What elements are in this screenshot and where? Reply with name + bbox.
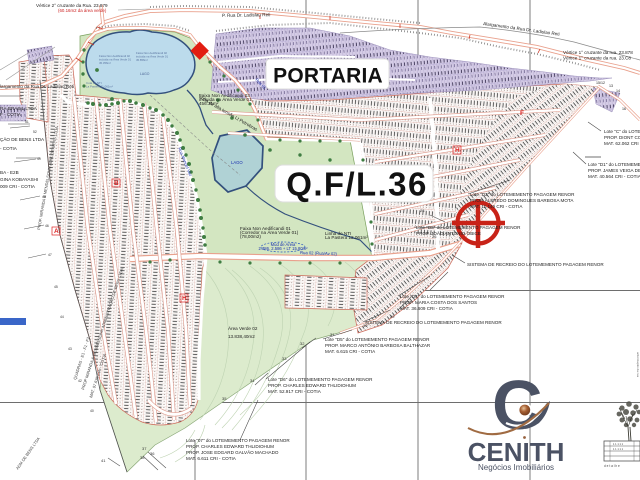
svg-text:41: 41 — [101, 458, 106, 463]
svg-text:RA-BRASIL LTDA: RA-BRASIL LTDA — [0, 106, 38, 111]
svg-text:PROP. ALFREDO DOMINGUES BARBOS: PROP. ALFREDO DOMINGUES BARBOSA MOTA — [470, 198, 574, 203]
svg-text:PROP. DIONT COM: PROP. DIONT COM — [604, 135, 640, 140]
svg-text:(60.16m2 da área verde): (60.16m2 da área verde) — [58, 8, 107, 13]
svg-text:Vértice 1° cruzante da rua. 23: Vértice 1° cruzante da rua. 23.878 — [563, 50, 633, 55]
svg-text:Lote "D2" do LOTEMEMENTO PAGAG: Lote "D2" do LOTEMEMENTO PAGAGEM RENOR — [470, 192, 575, 197]
svg-text:La Pastera 11.061m²: La Pastera 11.061m² — [86, 85, 113, 89]
svg-text:SISTEMA DE RECREIO DO LOTEMEME: SISTEMA DE RECREIO DO LOTEMEMENTO PAGAGE… — [467, 262, 604, 267]
svg-text:47: 47 — [48, 253, 52, 257]
svg-text:Lote "D4" do LOTEMEMENTO PAGAG: Lote "D4" do LOTEMEMENTO PAGAGEM RENOR — [400, 294, 505, 299]
svg-text:28: 28 — [420, 208, 425, 213]
svg-text:PROP. MARIA COSTA DOS SANTOS: PROP. MARIA COSTA DOS SANTOS — [400, 300, 477, 305]
svg-text:45.356m²: 45.356m² — [99, 61, 111, 65]
svg-text:33: 33 — [282, 356, 287, 361]
svg-text:45.856m²: 45.856m² — [136, 58, 148, 62]
svg-text:26: 26 — [432, 234, 437, 239]
svg-text:H: H — [455, 147, 460, 154]
svg-text:1 1 1 1 1: 1 1 1 1 1 — [613, 442, 624, 446]
svg-text:Lote "D6" do LOTEMEMENTO PAGAG: Lote "D6" do LOTEMEMENTO PAGAGEM RENOR — [268, 377, 373, 382]
svg-text:F - COTIA: F - COTIA — [0, 112, 22, 117]
svg-text:009 CRI - COTIA: 009 CRI - COTIA — [0, 184, 36, 189]
svg-text:456.31m²: 456.31m² — [199, 101, 219, 106]
svg-text:MAT. 52.917 CRI - COTIA: MAT. 52.917 CRI - COTIA — [268, 389, 322, 394]
svg-text:32: 32 — [300, 341, 305, 346]
svg-text:MAT. 40.564 CRI - COTIA: MAT. 40.564 CRI - COTIA — [588, 174, 640, 179]
svg-text:13: 13 — [609, 84, 613, 88]
svg-text:Negócios Imobiliários: Negócios Imobiliários — [478, 463, 554, 472]
svg-text:15/12: 15/12 — [596, 81, 605, 85]
svg-text:LAGO: LAGO — [231, 160, 243, 165]
svg-text:Lote "D1" do LOTEMEMENTO: Lote "D1" do LOTEMEMENTO — [588, 162, 640, 167]
svg-text:44: 44 — [60, 315, 64, 319]
svg-text:PROP. JOSE EDGARD GALVÃO MACHA: PROP. JOSE EDGARD GALVÃO MACHADO — [186, 449, 279, 455]
svg-text:Lote "D5" do LOTEMEMENTO PAGAG: Lote "D5" do LOTEMEMENTO PAGAGEM RENOR — [325, 337, 430, 342]
svg-text:LAGO: LAGO — [140, 72, 150, 76]
svg-text:36: 36 — [150, 451, 155, 456]
svg-text:Área Verde 02: Área Verde 02 — [228, 325, 258, 331]
svg-text:14: 14 — [616, 89, 620, 93]
svg-text:30: 30 — [363, 323, 368, 328]
svg-text:arborização da rua: arborização da rua — [636, 352, 640, 377]
svg-text:P. Rua Dr. Ladislau Reti: P. Rua Dr. Ladislau Reti — [222, 12, 271, 18]
svg-text:MAT. 62.062 CRI - C: MAT. 62.062 CRI - C — [604, 141, 640, 146]
svg-text:Lote "07" do LOTEMEMENTO PAGAG: Lote "07" do LOTEMEMENTO PAGAGEM RENOR — [186, 438, 290, 443]
svg-text:F: F — [520, 110, 524, 117]
svg-text:MAT. 11.149 CRI - COTIA: MAT. 11.149 CRI - COTIA — [470, 204, 523, 209]
svg-text:MAT. 6.615 CRI - COTIA: MAT. 6.615 CRI - COTIA — [325, 349, 376, 354]
svg-text:1 1 1 1 1: 1 1 1 1 1 — [613, 447, 624, 451]
svg-text:Q.F/L.36: Q.F/L.36 — [286, 166, 427, 203]
svg-text:B: B — [114, 180, 119, 187]
svg-text:SISTEMA DE RECREIO DO LOTEMEME: SISTEMA DE RECREIO DO LOTEMEMENTO PAGAGE… — [365, 320, 502, 325]
svg-text:29: 29 — [390, 314, 395, 319]
svg-text:PROP. JOÃO ANTONIO OBICE: PROP. JOÃO ANTONIO OBICE — [416, 230, 481, 236]
svg-text:(78,00m2): (78,00m2) — [240, 234, 261, 239]
svg-text:Vértice 1° cruzante da rua. 23: Vértice 1° cruzante da rua. 23.C8 — [563, 56, 631, 61]
svg-text:La Pastera 12.061m²: La Pastera 12.061m² — [325, 235, 368, 240]
svg-text:40: 40 — [90, 409, 94, 413]
svg-text:46: 46 — [45, 224, 49, 228]
svg-text:35: 35 — [222, 396, 227, 401]
svg-text:45: 45 — [54, 285, 58, 289]
svg-text:A: A — [54, 228, 59, 235]
svg-text:- COTIA: - COTIA — [0, 146, 18, 151]
svg-text:d e t a l h e: d e t a l h e — [604, 464, 620, 468]
svg-text:52: 52 — [33, 130, 37, 134]
svg-text:PORTARIA: PORTARIA — [273, 65, 383, 88]
svg-text:C: C — [492, 366, 543, 444]
svg-text:H: H — [182, 295, 187, 302]
svg-text:ÇÃO DE BENS LTDA: ÇÃO DE BENS LTDA — [0, 136, 45, 142]
svg-text:34: 34 — [250, 378, 255, 383]
svg-text:PROP. JAMES VEIGA DE OLI: PROP. JAMES VEIGA DE OLI — [588, 168, 640, 173]
svg-text:PROP. CHARLES EDWARD THLIDIOHU: PROP. CHARLES EDWARD THLIDIOHUM — [186, 444, 274, 449]
svg-text:GINA KOBAYASHI: GINA KOBAYASHI — [0, 177, 38, 182]
svg-text:PROP. MARCO ANTÔNIO BARBOSA BA: PROP. MARCO ANTÔNIO BARBOSA BALTHAZAR — [325, 342, 431, 348]
svg-text:49: 49 — [37, 157, 41, 161]
svg-text:Lote "C" do LOTEME: Lote "C" do LOTEME — [604, 129, 640, 134]
svg-text:13.838,40m2: 13.838,40m2 — [228, 334, 255, 339]
svg-text:BA - E2B: BA - E2B — [0, 170, 19, 175]
svg-text:43: 43 — [68, 347, 72, 351]
svg-text:51: 51 — [25, 120, 29, 124]
svg-text:largamento da Rua Dr. Ladislao: largamento da Rua Dr. Ladislao Reti — [0, 84, 74, 89]
svg-text:MAT. 36.609 CRI - COTIA: MAT. 36.609 CRI - COTIA — [400, 306, 454, 311]
svg-text:PROP. CHARLES EDWARD THLIDIOHU: PROP. CHARLES EDWARD THLIDIOHUM — [268, 383, 356, 388]
svg-text:MAT. 6.611 CRI - COTIA: MAT. 6.611 CRI - COTIA — [186, 456, 237, 461]
svg-text:16: 16 — [622, 107, 626, 111]
svg-text:37: 37 — [142, 446, 147, 451]
